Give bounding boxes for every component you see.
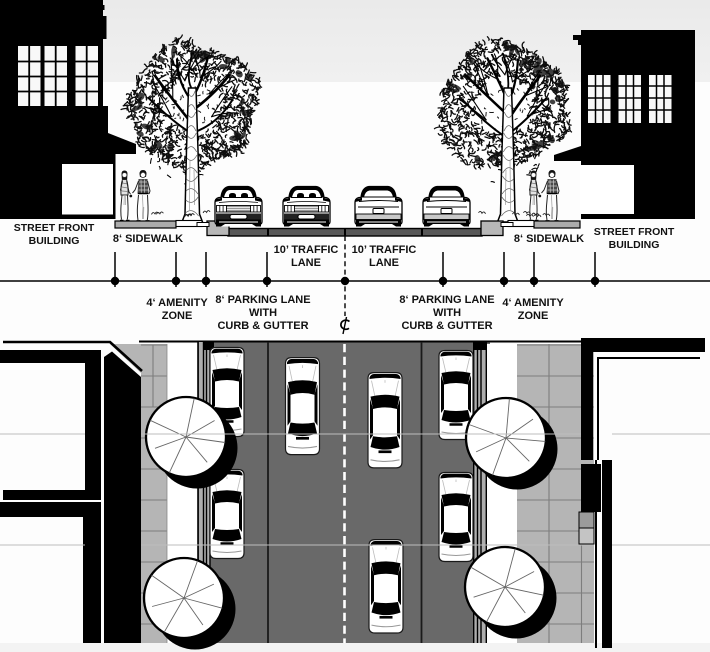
svg-text:STREET FRONT: STREET FRONT	[14, 222, 95, 234]
svg-text:8‘ SIDEWALK: 8‘ SIDEWALK	[514, 233, 584, 245]
svg-text:LANE: LANE	[291, 257, 321, 269]
svg-text:8‘ PARKING LANE: 8‘ PARKING LANE	[399, 294, 494, 306]
svg-text:10’ TRAFFIC: 10’ TRAFFIC	[352, 244, 417, 256]
svg-text:BUILDING: BUILDING	[29, 235, 80, 247]
svg-text:ZONE: ZONE	[162, 310, 193, 322]
svg-text:8‘ SIDEWALK: 8‘ SIDEWALK	[113, 233, 183, 245]
svg-text:4‘ AMENITY: 4‘ AMENITY	[502, 297, 564, 309]
svg-text:WITH: WITH	[249, 307, 277, 319]
svg-text:CURB & GUTTER: CURB & GUTTER	[401, 320, 492, 332]
svg-text:WITH: WITH	[433, 307, 461, 319]
svg-text:CURB & GUTTER: CURB & GUTTER	[217, 320, 308, 332]
svg-text:4‘ AMENITY: 4‘ AMENITY	[146, 297, 208, 309]
svg-text:BUILDING: BUILDING	[609, 239, 660, 251]
svg-text:ZONE: ZONE	[518, 310, 549, 322]
svg-text:8‘ PARKING LANE: 8‘ PARKING LANE	[215, 294, 310, 306]
svg-text:STREET FRONT: STREET FRONT	[594, 226, 675, 238]
svg-text:LANE: LANE	[369, 257, 399, 269]
svg-text:10’ TRAFFIC: 10’ TRAFFIC	[274, 244, 339, 256]
